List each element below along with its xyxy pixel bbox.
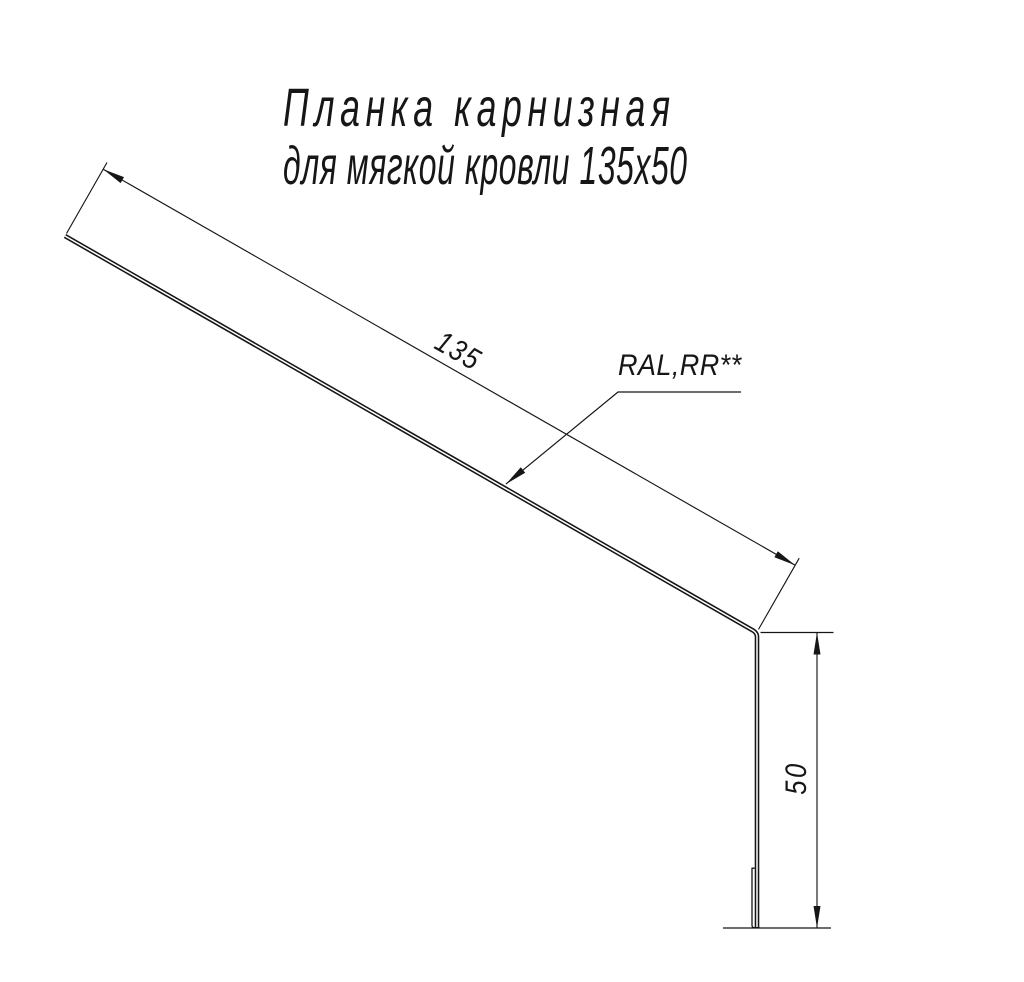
drawing-page: 135 50 RAL,RR** Планка карнизная для мяг… [0, 0, 1024, 982]
profile-outline [65, 236, 760, 928]
dimension-50: 50 [723, 633, 834, 929]
dimension-135: 135 [67, 163, 800, 630]
coating-label: RAL,RR** [618, 349, 742, 383]
profile-sheet-stroke [65, 236, 757, 927]
arrowhead-50-top [814, 633, 821, 655]
dim-50-value: 50 [779, 761, 812, 794]
coating-leader-line [506, 392, 741, 484]
extension-line-135-right [759, 558, 800, 629]
drawing-title-line2: для мягкой кровли 135х50 [283, 136, 688, 196]
drawing-title: Планка карнизная для мягкой кровли 135х5… [283, 78, 688, 197]
arrowhead-50-bottom [814, 906, 821, 928]
coating-leader-arrowhead [506, 467, 525, 484]
coating-callout: RAL,RR** [506, 349, 742, 484]
technical-drawing: 135 50 RAL,RR** Планка карнизная для мяг… [0, 0, 1024, 982]
profile-sheet-split [65, 236, 757, 927]
arrowhead-135-right [774, 551, 795, 565]
extension-line-135-left [67, 163, 108, 234]
drawing-title-line1: Планка карнизная [283, 78, 676, 138]
arrowhead-135-left [103, 169, 124, 183]
dim-135-value: 135 [430, 324, 488, 377]
